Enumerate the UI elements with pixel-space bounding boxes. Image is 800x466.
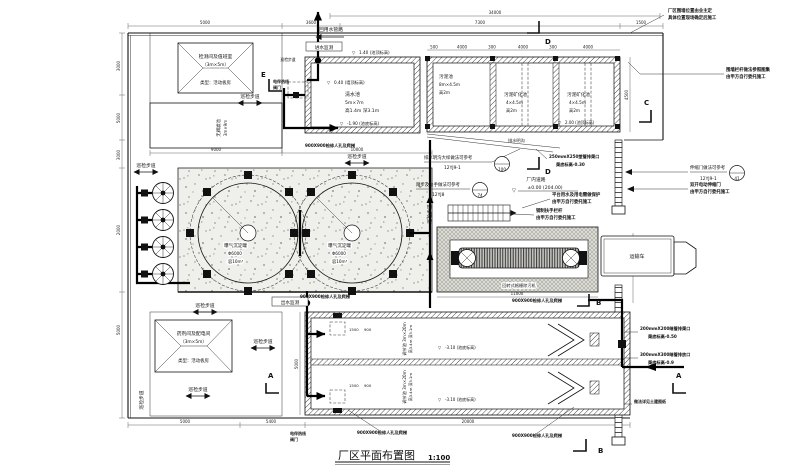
chemical-room-size: （3m×5m） (180, 339, 207, 345)
dim-bottom-3: 20000 (462, 419, 475, 424)
dim-sludge-b: 4000 (457, 45, 468, 50)
basin-divider-wall (311, 359, 624, 365)
valve-label: 阀门 (290, 436, 298, 442)
inlet-monitor-point (315, 57, 321, 63)
truck-cab (674, 242, 696, 274)
monitor-room-size: （3m×5m） (202, 62, 229, 68)
monitor-room-name: 检测间及值班室 (199, 53, 233, 60)
basin-1-bottom-level: -3.10 (池底标高) (445, 344, 476, 350)
monitor-room-type: 类型：活动板房 (200, 79, 231, 86)
dim-sludge-d: 4000 (518, 45, 529, 50)
basin-2-spec: 高3.4m 深3.1m (408, 373, 413, 402)
sludge-top-level: 2.00 (池顶标高) (565, 119, 595, 125)
valve-label: 阀门 (273, 84, 281, 90)
dim-manhole-1b: 900 (364, 327, 372, 332)
heat-trace-label: 电伴热线 (273, 78, 289, 84)
road-name: 厂内道路 (526, 176, 545, 183)
plant-layout-drawing: 34000 5000 3600 7300 1500 3000 5000 3000… (0, 0, 800, 466)
clear-water-tank: ▽ 0.40 (墙顶标高) 清水池 5m×7m 高1.4m 深3.1m ▽ -1… (288, 49, 420, 133)
callout-1-text: 排水明沟大样做法可参考 (424, 154, 473, 161)
inlet-monitor-label: 进水监测 (315, 44, 334, 51)
screen-drum (459, 248, 579, 268)
walkway-label: 巡检步道 (426, 204, 433, 223)
clear-tank-top-level: 1.40 (池顶标高) (359, 49, 390, 56)
dim-bottom-1: 5000 (180, 419, 191, 424)
note-gate-2: 由甲方自行委托施工 (690, 188, 730, 195)
walkway-label: 巡检步道 (347, 153, 366, 160)
ditch-label: 排水明沟 (508, 137, 525, 144)
callout-2-num: 74 (477, 193, 483, 198)
civil-note: 做法详见土建图纸 (633, 398, 666, 404)
drain-200-level: 渠底标高-0.50 (647, 333, 677, 340)
regulating-basins: 1500 900 1500 900 调节池 3m×20m 高3.4m 深3.1m… (305, 312, 630, 415)
dim-top-4: 1500 (636, 20, 647, 25)
clear-tank-bottom-level: -1.90 (池底标高) (347, 120, 380, 127)
transport-truck: 运输车 (601, 236, 696, 276)
basin-valve (618, 340, 626, 348)
callout-3-text: 伸缩门做法可参考 (690, 164, 726, 171)
sludge-tank-size: 8m×4.5m (439, 82, 460, 87)
mineral-tank-1-name: 污泥矿化池 (504, 91, 527, 98)
manhole-label: 900X900检修人孔及爬梯 (305, 142, 356, 149)
screen-machine-label: 回转式格栅除污机 (502, 282, 536, 289)
note-platform-2: 由甲方自行委托施工 (552, 198, 592, 205)
mineral-tank-1-size: 4×4.5m (506, 100, 523, 105)
callout-2-text: 踏步及扶手做法可参考 (416, 181, 461, 188)
section-e: E (261, 71, 266, 79)
aeration-2-volume: 容10m³ (332, 258, 348, 265)
dim-sludge-c: 300 (488, 45, 496, 50)
note-handrail-2: 由甲方自行委托施工 (536, 214, 576, 221)
aeration-area: 曝气沉淀罐 Φ6000 容10m³ 曝气沉淀罐 Φ6000 容10m³ (178, 168, 432, 295)
basin-1-spec: 高3.4m 深3.1m (408, 325, 413, 354)
drain-200-label: 200mmX200暗管排渠口 (640, 325, 690, 332)
divider-wall-2 (553, 63, 559, 126)
note-rail-2: 由甲方自行委托施工 (726, 73, 766, 80)
walkway-label: 巡检步道 (195, 302, 214, 309)
note-fence-2: 具体位置现场确定后施工 (668, 14, 717, 21)
drain-250-level: 渠底标高-0.30 (555, 161, 585, 168)
note-handrail-1: 钢制扶手栏杆 (536, 207, 563, 214)
callout-1-code: 12YJ9-1 (444, 165, 461, 171)
walkway-label: 巡检步道 (280, 57, 295, 62)
aeration-2-name: 曝气沉淀罐 (328, 242, 351, 249)
clear-tank-spec: 高1.4m 深3.1m (345, 107, 380, 114)
manhole-label: 900X900检修人孔及爬梯 (512, 297, 563, 304)
road-level: ±0.00 (204.00) (527, 185, 562, 191)
callout-1-num: 100 (498, 167, 506, 172)
section-b-top: B (596, 299, 601, 307)
mineral-tank-2-height: 高2m (569, 107, 580, 114)
drawing-scale: 1:100 (428, 454, 450, 462)
basin-1-name: 调节池 3m×20m (401, 322, 408, 356)
filter-name: 无阀滤池 (215, 119, 222, 137)
dim-left-4: 2000 (116, 224, 121, 235)
clear-tank-wall-top-level: 0.40 (墙顶标高) (334, 79, 365, 86)
aeration-2-size: Φ6000 (332, 251, 346, 256)
manhole-label: 900X900检修人孔及爬梯 (300, 293, 351, 300)
mineral-tank-1-height: 高2m (506, 107, 517, 114)
clear-tank-name: 清水池 (345, 91, 360, 98)
section-b-bottom: B (598, 447, 603, 455)
callout-3-num: 41 (734, 176, 740, 181)
sludge-tank-height: 高2m (439, 89, 450, 96)
screen-machine-area: 回转式格栅除污机 (437, 227, 598, 292)
walkway-label: 巡检步道 (136, 162, 155, 169)
chemical-room-name: 药剂间及配电间 (177, 330, 211, 337)
section-a-left: A (268, 372, 274, 380)
section-c: C (644, 99, 649, 107)
note-fence-1: 厂区围墙位置由业主定 (668, 7, 713, 14)
road-level-symbol: ▽ (512, 188, 516, 194)
dim-manhole-1a: 1500 (349, 327, 359, 332)
stair (448, 205, 516, 221)
section-d-mid: D (545, 168, 551, 176)
dim-sludge-f: 4000 (583, 45, 594, 50)
drain-300-label: 300mmX300暗管排放口 (640, 351, 690, 358)
walkway-label: 巡检步道 (240, 93, 259, 100)
basin-2-bottom-level: -3.10 (池底标高) (445, 396, 476, 402)
divider-wall-1 (490, 63, 496, 126)
drawing-title: 厂区平面布置图 (338, 449, 415, 462)
aeration-1-name: 曝气沉淀罐 (224, 242, 247, 249)
reuse-pipe-text: 回用水管路 (319, 26, 343, 33)
drain-300-level: 渠底标高-0.9 (647, 359, 674, 366)
dim-top-3: 7300 (475, 20, 486, 25)
section-d-top: D (545, 38, 551, 46)
dim-manhole-2a: 1500 (349, 383, 359, 388)
basin-2-name: 调节池 3m×20m (401, 370, 408, 404)
sludge-tank-name: 污泥池 (439, 73, 453, 80)
aeration-1-size: Φ6000 (228, 251, 242, 256)
dim-sludge-right: 4500 (624, 89, 629, 100)
drawing-canvas: 34000 5000 3600 7300 1500 3000 5000 3000… (0, 0, 800, 466)
note-gate-1: 双开电动伸缩门 (690, 181, 721, 188)
note-platform-1: 平台用水及用电需做保护 (552, 191, 601, 198)
walkway-label: 巡检步道 (253, 338, 272, 345)
section-a-right: A (676, 372, 682, 380)
manhole-label: 900X900检修人孔及爬梯 (357, 429, 408, 436)
dim-basin-height: 5000 (294, 358, 299, 369)
dim-top-2: 3600 (306, 20, 317, 25)
mineral-tank-2-name: 污泥矿化池 (567, 91, 590, 98)
dim-left-1: 3000 (116, 60, 121, 71)
truck-label: 运输车 (629, 253, 644, 260)
outlet-monitor-label: 出水监测 (281, 299, 300, 306)
dim-sludge-a: 500 (430, 45, 438, 50)
dim-top-1: 5000 (200, 20, 211, 25)
dim-left-2: 5000 (116, 112, 121, 123)
sludge-tank-block: 污泥池 8m×4.5m 高2m 污泥矿化池 4×4.5m 高2m 污泥矿化池 4… (425, 56, 620, 132)
dim-left-5: 5000 (116, 324, 121, 335)
dim-overall-width: 34000 (489, 10, 502, 15)
mineral-tank-2-size: 4×4.5m (569, 100, 586, 105)
filter-size: 3m×9m (223, 120, 228, 136)
dim-left-3: 3000 (116, 149, 121, 160)
dim-manhole-2b: 900 (364, 383, 372, 388)
callout-2-code: 12YJ8 (432, 192, 445, 198)
dim-bottom-2: 5400 (266, 419, 277, 424)
chemical-room-type: 类型：活动板房 (178, 357, 209, 364)
walkway-label: 巡检步道 (138, 390, 145, 409)
callout-3-code: 12YJ9-1 (700, 176, 717, 182)
walkway-label: 巡检步道 (188, 386, 207, 393)
aeration-1-volume: 容10m³ (228, 258, 244, 265)
note-rail-1: 围墙栏杆做法参照图集 (726, 66, 771, 73)
inlet-valve (293, 92, 299, 98)
clear-tank-size: 5m×7m (345, 100, 364, 106)
drain-250-label: 250mmX250塑管排渠口 (549, 153, 599, 160)
heat-trace-label: 电伴热线 (290, 430, 306, 436)
